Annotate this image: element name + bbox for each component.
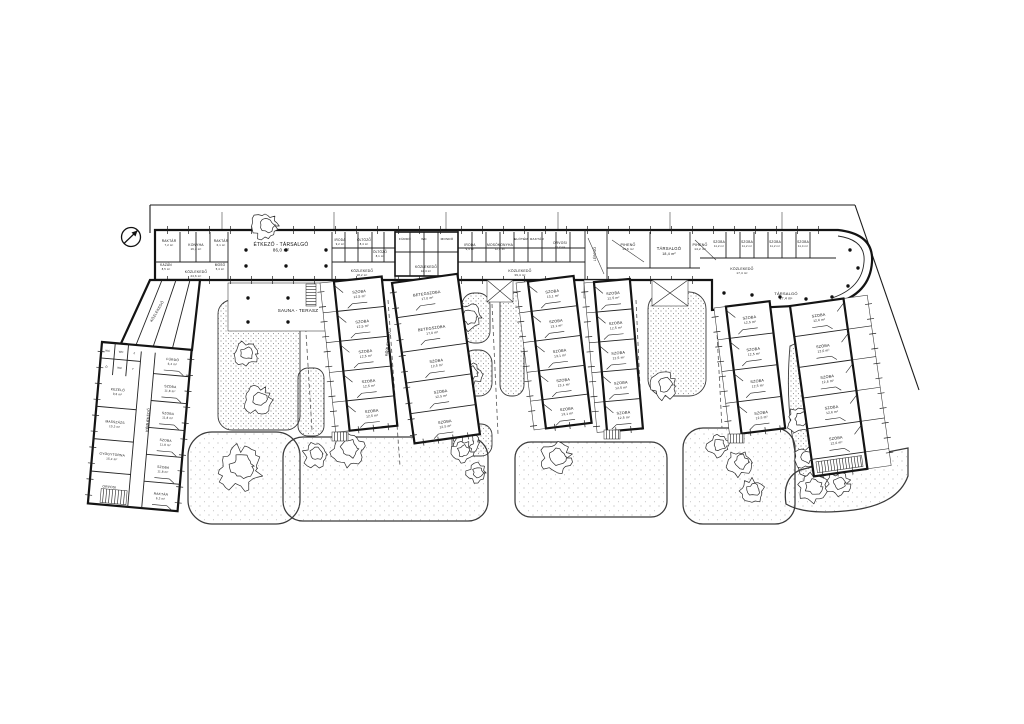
room-area: 11,4 m² (798, 244, 808, 248)
room-area: 18,2 m² (357, 273, 368, 277)
room-name: RAKTÁR (162, 239, 177, 243)
room-area: 6,2 m² (156, 496, 166, 501)
column-dot (804, 297, 807, 300)
room-area: 17,4 m² (780, 297, 794, 301)
room-area: 9,6 m² (113, 392, 123, 397)
plan-label: WC (421, 237, 427, 241)
column-dot (246, 296, 249, 299)
room-name: KAZÁN (160, 263, 172, 267)
stair (306, 284, 316, 306)
room-area: 6,4 m² (167, 362, 177, 367)
column-dot (848, 248, 851, 251)
room-area: 18,4 m² (662, 252, 676, 256)
room-name: ÖLTÖZŐ (373, 249, 387, 254)
site-plan-page: WCWCZÖWCTKEZELŐ9,6 m²MASSZÁZS10,2 m²GYÓG… (0, 0, 1024, 724)
room-area: 11,2 m² (770, 244, 780, 248)
plan-label: SZOBA11,2 m² (713, 240, 725, 248)
room-area: 11,2 m² (555, 245, 565, 249)
room-area: 24,6 m² (191, 274, 202, 278)
room-area: 86,0 m² (273, 248, 290, 253)
room-name: IRODA (464, 243, 476, 247)
room-name: SZOBA (741, 240, 753, 244)
cell-label: WC (119, 350, 124, 354)
room-area: 11,2 m² (742, 244, 752, 248)
room-name: WC (421, 237, 427, 241)
stair (100, 488, 127, 504)
plan-label: RAKTÁR (530, 237, 544, 241)
plan-label: SZOBA11,2 m² (741, 240, 753, 248)
column-dot (722, 291, 725, 294)
column-dot (324, 248, 327, 251)
plan-label: ELŐTÉR (514, 236, 528, 241)
room-name: RAKTÁR (214, 239, 229, 243)
plan-label: FÜRDŐ (399, 236, 411, 241)
room-area: 14,2 m² (694, 247, 706, 251)
cell-label: WC (105, 349, 110, 353)
room-name: TÁRSALGÓ (657, 246, 682, 251)
room-area: 8,1 m² (376, 254, 385, 258)
entry-porch (487, 280, 513, 302)
column-dot (846, 284, 849, 287)
room-area: 39,4 m² (514, 273, 525, 277)
column-dot (286, 296, 289, 299)
room-area: 16,4 m² (191, 247, 202, 251)
plan-label: MOSÓ5,4 m² (215, 262, 226, 271)
column-dot (750, 293, 753, 296)
column-dot (244, 264, 247, 267)
left-wing: WCWCZÖWCTKEZELŐ9,6 m²MASSZÁZS10,2 m²GYÓG… (84, 342, 195, 512)
column-dot (284, 264, 287, 267)
cell-label: WC (117, 366, 122, 370)
room-name: SZOBA (797, 240, 809, 244)
plan-label: SZOBA11,4 m² (797, 240, 809, 248)
room-area: 17,4 m² (736, 271, 747, 275)
column-dot (244, 248, 247, 251)
plan-label: ORVOSI11,2 m² (553, 241, 567, 249)
plan-label: PIHENŐ14,6 m² (621, 242, 636, 251)
room-name: SZOBA (713, 240, 725, 244)
room-name: MOSÓ (215, 262, 226, 267)
plan-label: MOSDÓ (441, 236, 454, 241)
column-dot (286, 320, 289, 323)
room-area: 8,4 m² (360, 242, 369, 246)
room-name: SAUNA - TERASZ (278, 308, 319, 313)
column-dot (246, 320, 249, 323)
floor-plan-drawing: WCWCZÖWCTKEZELŐ9,6 m²MASSZÁZS10,2 m²GYÓG… (0, 0, 1024, 724)
planting-bed (298, 368, 324, 436)
room-name: ORVOSI (553, 241, 567, 245)
room-area: 12,4 m² (421, 269, 432, 273)
column-dot (830, 295, 833, 298)
room-name: IRODA (334, 238, 346, 242)
room-name: MOSÓKONYHA (487, 242, 514, 247)
column-dot (856, 266, 859, 269)
room-name: TÁRSALGÓ (774, 291, 797, 296)
room-name: ÖLTÖZŐ (357, 237, 371, 242)
room-area: 6,1 m² (217, 243, 226, 247)
room-name: SZOBA (769, 240, 781, 244)
room-name: RAKTÁR (530, 237, 544, 241)
lawn-area (515, 442, 667, 517)
plan-label: SAUNA - TERASZ (278, 308, 319, 313)
plan-label: LÉPCSŐ (592, 247, 597, 261)
room-area: 9,2 m² (336, 242, 345, 246)
room-area: 11,2 m² (714, 244, 724, 248)
room-name: ELŐTÉR (514, 236, 528, 241)
room-area: 9,4 m² (466, 247, 475, 251)
plan-label: PIHENŐ14,2 m² (693, 242, 708, 251)
room-area: 7,2 m² (165, 243, 174, 247)
room-name: FÜRDŐ (399, 236, 411, 241)
room-area: 8,5 m² (162, 267, 171, 271)
room-area: 14,6 m² (622, 247, 634, 251)
plan-label: SZOBA11,2 m² (769, 240, 781, 248)
room-name: MOSDÓ (441, 236, 454, 241)
column-dot (324, 264, 327, 267)
room-name: LÉPCSŐ (592, 247, 597, 261)
entry-porch (652, 280, 688, 306)
room-area: 5,4 m² (216, 267, 225, 271)
room-name: KÖZLEKEDŐ (415, 264, 437, 269)
room-area: 12,8 m² (495, 247, 506, 251)
